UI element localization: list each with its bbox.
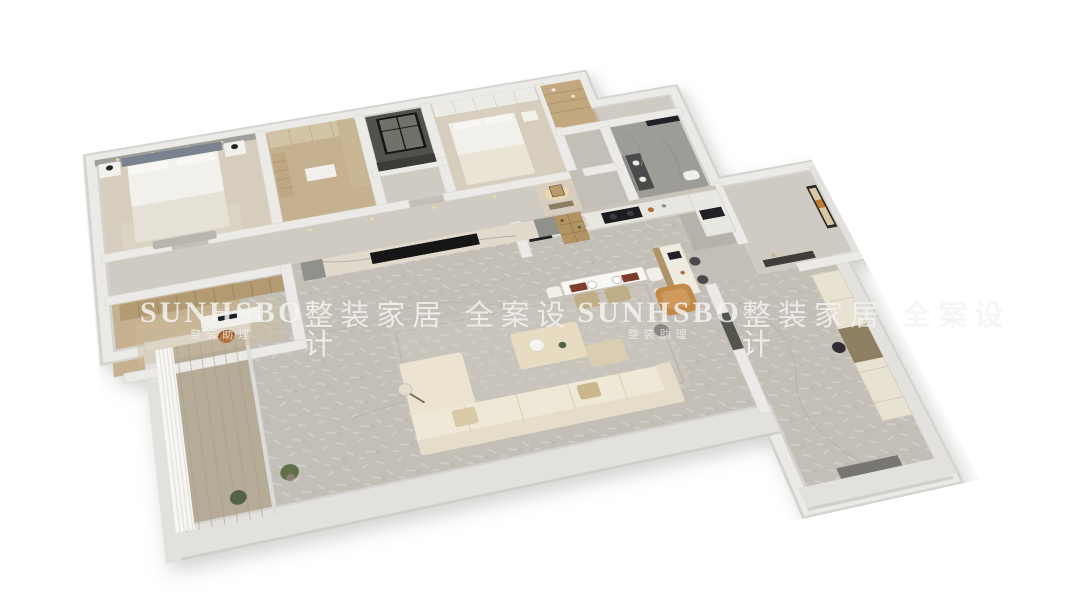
apartment-plan	[82, 41, 980, 608]
plan-canvas	[82, 41, 980, 608]
render-scene	[0, 0, 1080, 608]
building	[91, 46, 980, 608]
floor-plan-render: SUNHSBO 整装助理 整装家居 全案设计 SUNHSBO 整装助理 整装家居…	[0, 0, 1080, 608]
